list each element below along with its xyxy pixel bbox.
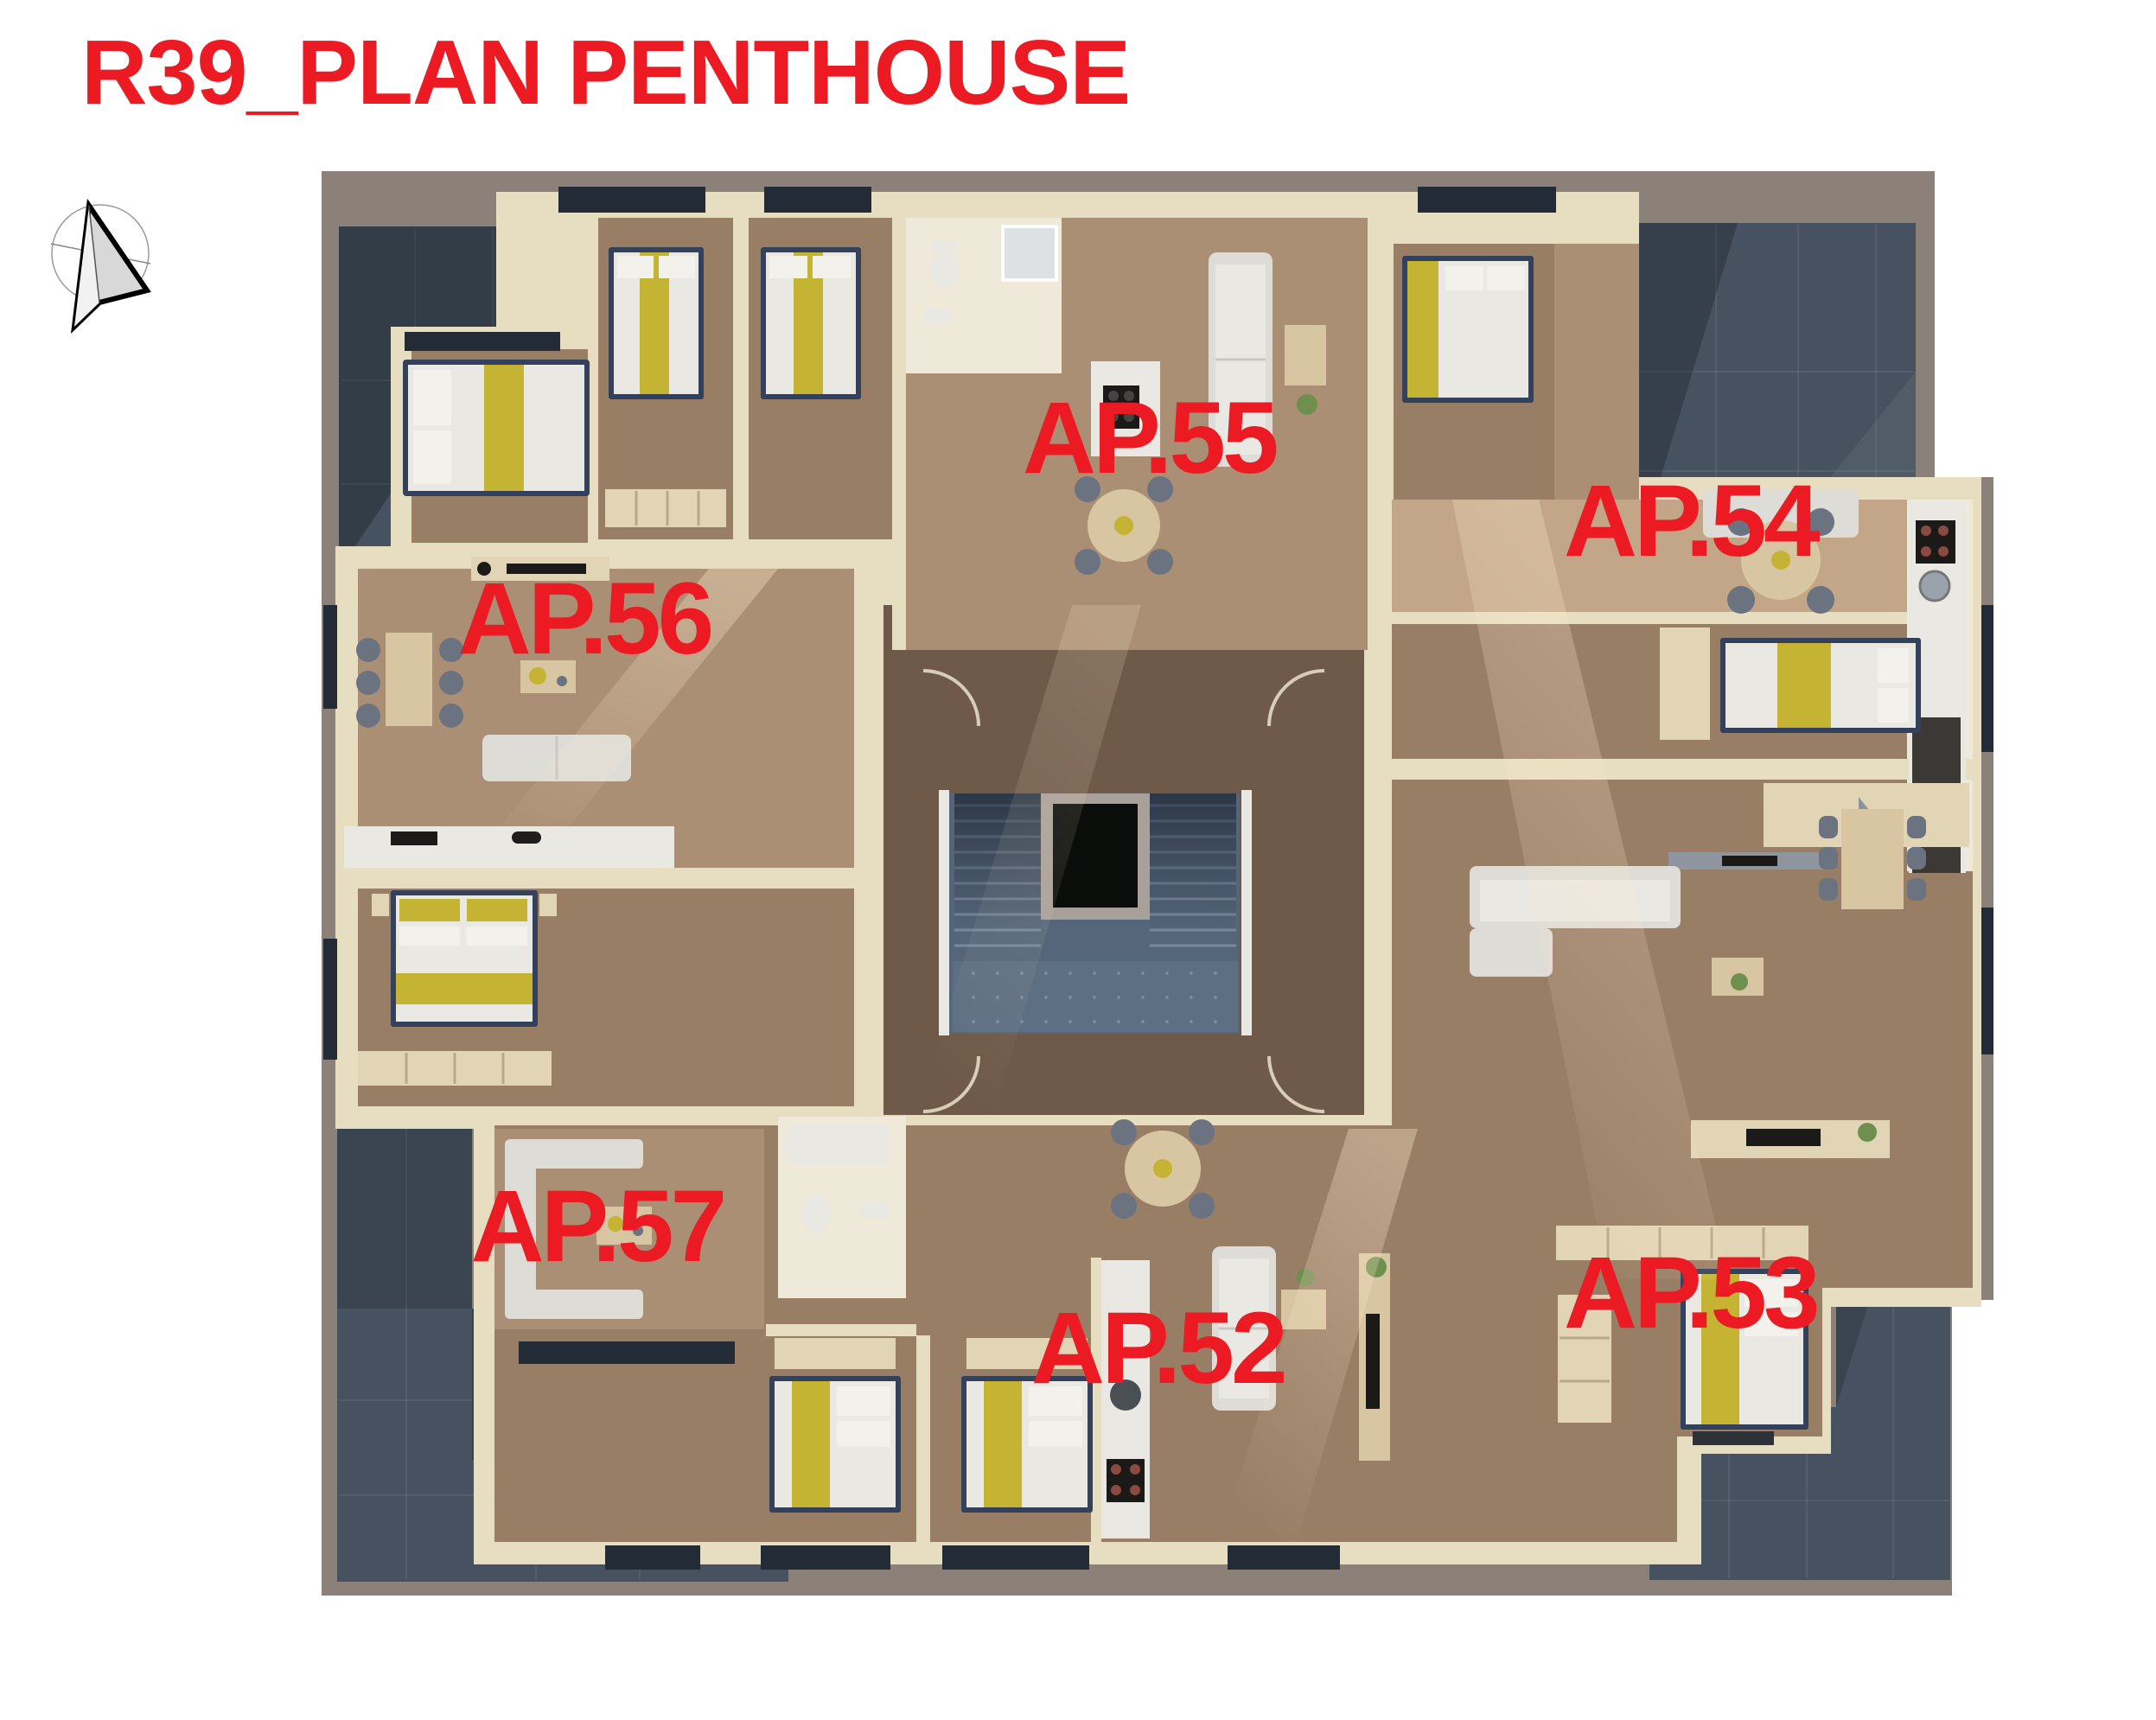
- stairs-right: [1150, 793, 1236, 958]
- bed: [609, 247, 704, 399]
- kitchen: [1101, 1260, 1150, 1538]
- dining-set: [1727, 508, 1834, 614]
- dining-set: [1111, 1119, 1215, 1219]
- dining-set: [1075, 476, 1173, 575]
- sofa: [1212, 1246, 1276, 1411]
- kitchenette: [1091, 361, 1160, 456]
- page: R39_PLAN PENTHOUSE: [0, 0, 2156, 1720]
- sofa: [1209, 252, 1273, 467]
- bed: [769, 1376, 901, 1513]
- bed: [403, 360, 590, 496]
- floor-plan-render: [0, 0, 2156, 1720]
- bed: [391, 890, 538, 1027]
- bed: [1402, 256, 1534, 403]
- bed: [761, 247, 861, 399]
- bed: [961, 1376, 1093, 1513]
- dining-set: [356, 633, 463, 728]
- bed: [1720, 638, 1921, 733]
- bed: [1681, 1269, 1808, 1445]
- dining-set: [1819, 809, 1926, 909]
